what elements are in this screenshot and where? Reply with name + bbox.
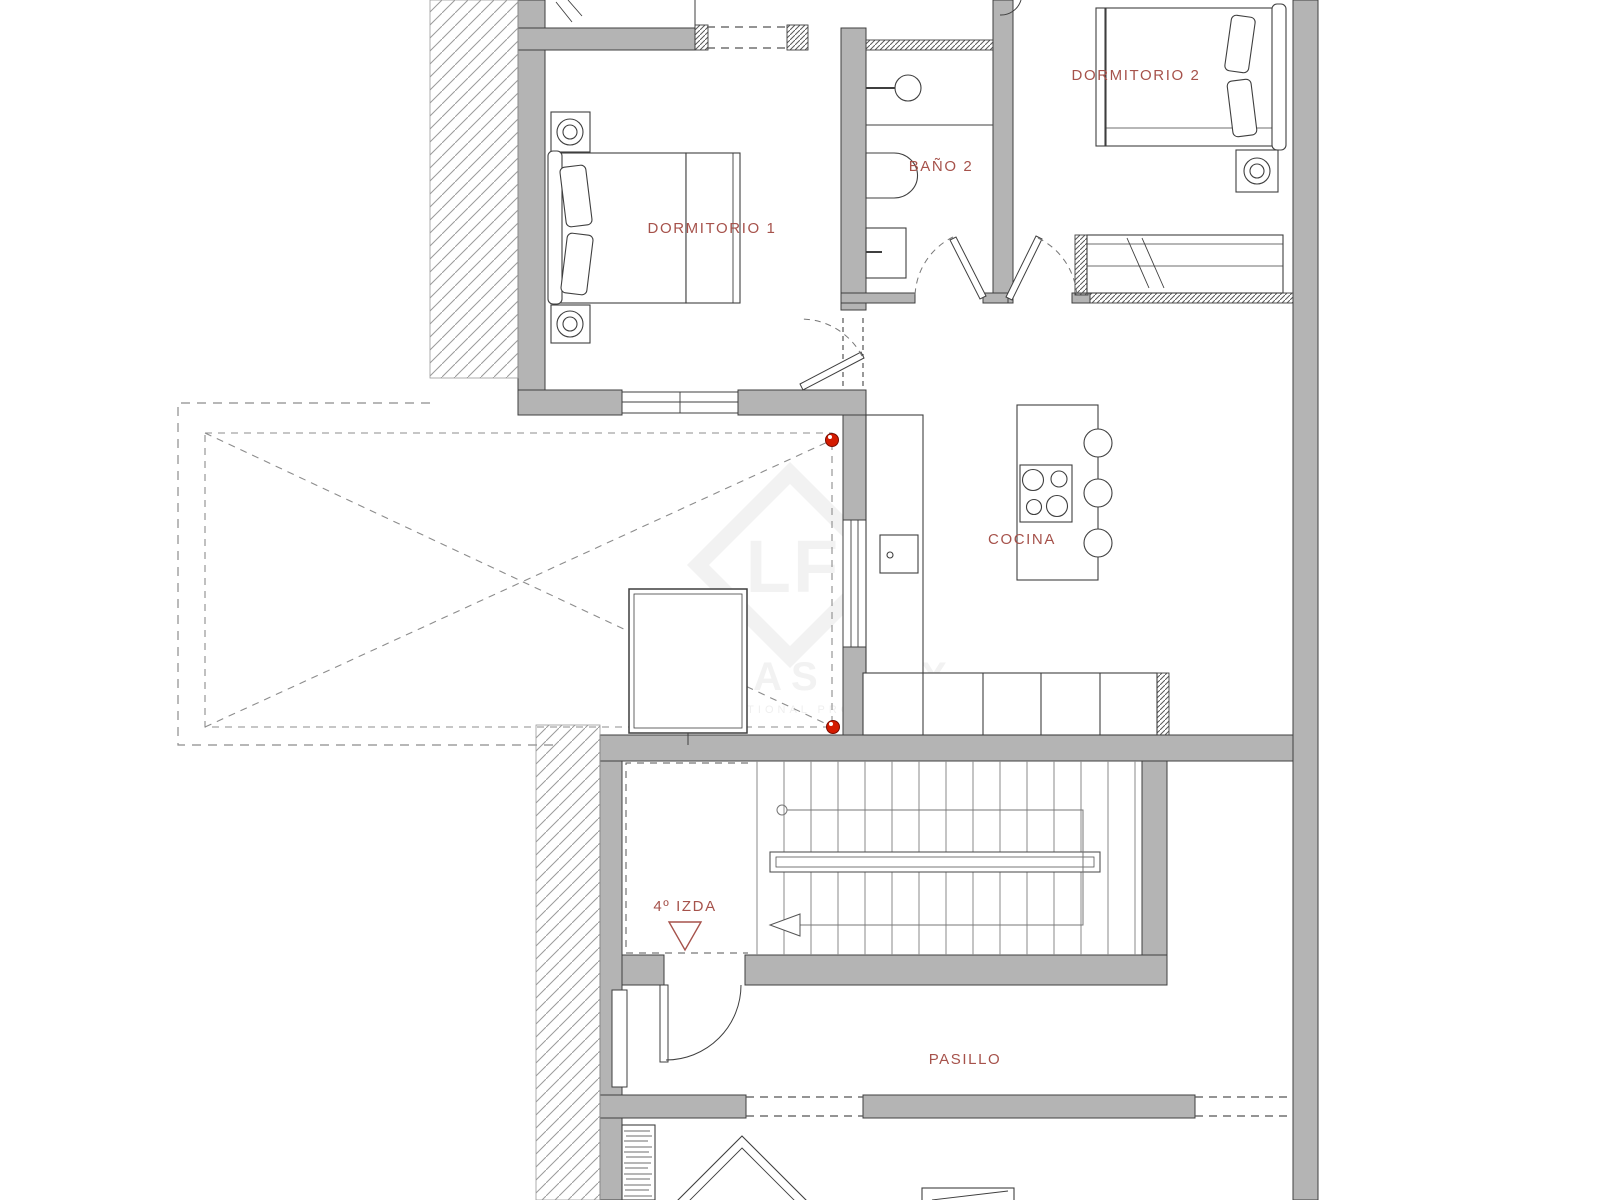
kitchen-lower-counter bbox=[863, 673, 1157, 735]
top-room bbox=[556, 0, 695, 28]
label-bano-2: BAÑO 2 bbox=[909, 158, 974, 175]
pillar bbox=[1075, 235, 1088, 295]
pillar bbox=[695, 25, 708, 50]
wall bbox=[518, 390, 622, 415]
lamp-inner bbox=[563, 317, 577, 331]
bar-stool-icon bbox=[1084, 429, 1112, 457]
watermark-monogram: LF bbox=[746, 525, 840, 608]
wall bbox=[993, 0, 1013, 303]
bedroom2-furniture bbox=[1087, 4, 1286, 293]
bar-stool-icon bbox=[1084, 479, 1112, 507]
pillar bbox=[1157, 673, 1169, 735]
kitchen bbox=[863, 405, 1157, 735]
wall bbox=[1293, 0, 1318, 1200]
desk-icon bbox=[922, 1188, 1014, 1200]
salon-furniture bbox=[622, 1125, 1014, 1200]
wardrobe-icon bbox=[1087, 235, 1283, 293]
armchair-icon bbox=[632, 1136, 852, 1200]
door-swing-icon bbox=[1006, 236, 1077, 300]
corner-marker-icon bbox=[827, 721, 840, 734]
wall bbox=[600, 761, 622, 1200]
mirror-glass-icon bbox=[556, 0, 582, 22]
headboard bbox=[1272, 4, 1286, 150]
partition bbox=[866, 40, 993, 50]
wall bbox=[518, 28, 695, 50]
label-cocina: COCINA bbox=[988, 531, 1056, 548]
wall bbox=[622, 955, 664, 985]
staircase-icon bbox=[626, 761, 1135, 955]
opening bbox=[1195, 1097, 1293, 1116]
wash-basin-icon bbox=[895, 75, 921, 101]
door-swing-icon bbox=[660, 985, 741, 1062]
window-icon bbox=[843, 520, 866, 647]
floor-plan: LF LUCAS FOX INTERNATIONAL PROPERTIES bbox=[0, 0, 1600, 1200]
label-dormitorio-2: DORMITORIO 2 bbox=[1072, 67, 1201, 84]
bathroom2-fixtures bbox=[866, 75, 993, 278]
wall bbox=[843, 415, 866, 520]
unit-entry-triangle-icon bbox=[669, 922, 701, 950]
bookshelf-icon bbox=[622, 1125, 655, 1200]
walk-line-arrow-icon bbox=[770, 914, 800, 936]
opening bbox=[707, 27, 787, 48]
kitchen-sink-icon bbox=[880, 535, 918, 573]
lamp-inner bbox=[1250, 164, 1264, 178]
wall bbox=[518, 0, 545, 415]
partition bbox=[1090, 293, 1293, 303]
bar-stool-icon bbox=[1084, 529, 1112, 557]
door-swing-icon bbox=[915, 237, 986, 299]
wall bbox=[600, 1095, 746, 1118]
door-swing-icon bbox=[800, 319, 864, 390]
opening bbox=[746, 1097, 863, 1116]
lamp-inner bbox=[563, 125, 577, 139]
corner-marker-icon bbox=[826, 434, 839, 447]
window-icon bbox=[622, 392, 738, 413]
hatch-band bbox=[536, 725, 600, 1200]
label-pasillo: PASILLO bbox=[929, 1051, 1002, 1068]
wall bbox=[863, 1095, 1195, 1118]
label-dormitorio-1: DORMITORIO 1 bbox=[648, 220, 777, 237]
wall bbox=[600, 735, 1293, 761]
wall bbox=[1142, 761, 1167, 985]
label-unit: 4º IZDA bbox=[653, 898, 716, 915]
terrace-boundary bbox=[178, 403, 560, 745]
pillar bbox=[787, 25, 808, 50]
wall bbox=[738, 390, 866, 415]
wall bbox=[841, 28, 866, 310]
hob-icon bbox=[1020, 465, 1072, 522]
radiator-icon bbox=[612, 990, 627, 1087]
floor-plan-drawing: LF LUCAS FOX INTERNATIONAL PROPERTIES bbox=[0, 0, 1600, 1200]
walk-line-start bbox=[777, 805, 787, 815]
landing-boundary bbox=[626, 763, 748, 953]
handrail-icon bbox=[770, 852, 1100, 872]
shaft-box bbox=[629, 589, 747, 745]
wall bbox=[745, 955, 1167, 985]
hatch-band bbox=[430, 0, 518, 378]
wall bbox=[841, 293, 915, 303]
wall bbox=[983, 293, 1008, 303]
